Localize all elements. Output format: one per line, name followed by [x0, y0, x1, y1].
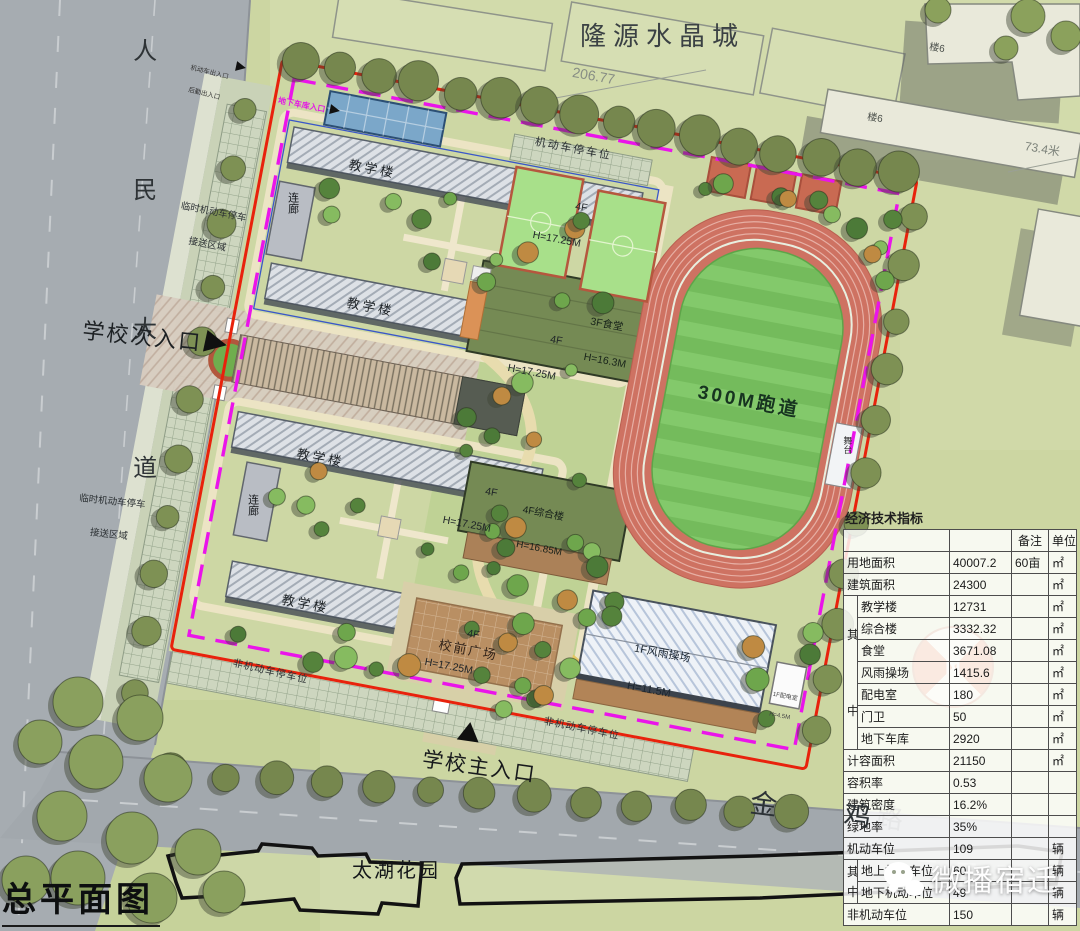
group-label-char1: 其: [847, 626, 854, 643]
temp-parking-line2: 接送区域: [75, 526, 142, 544]
temp-parking-line1: 临时机动车停车: [79, 494, 146, 512]
site-plan-canvas: 隆源水晶城 206.77 楼6 楼6 73.4米 人民大道 学校次入口 临时机动…: [0, 0, 1080, 931]
estate-south-label: 太湖花园: [352, 860, 440, 883]
temp-parking-line1: 临时机动车停车: [180, 201, 247, 224]
teaching-height: H=17.25M: [532, 229, 582, 250]
corridor-label-1: 连廊: [286, 192, 299, 214]
temp-parking-label-2: 临时机动车停车 接送区域: [74, 472, 148, 555]
substation-line2: H=4.5M: [768, 712, 794, 723]
table-row: 其 中 教学楼12731 ㎡: [844, 596, 1077, 618]
teaching-floors: 4F: [430, 621, 480, 642]
table-row: 地下车库2920 ㎡: [844, 728, 1077, 750]
table-header-row: 备注 单位: [844, 530, 1077, 552]
estate-north-label: 隆源水晶城: [580, 22, 745, 52]
corridor-label-2: 连廊: [246, 494, 259, 516]
table-row: 门卫50 ㎡: [844, 706, 1077, 728]
teaching-floors: 4F: [448, 479, 498, 500]
table-row: 配电室180 ㎡: [844, 684, 1077, 706]
page-title: 总平面图: [2, 872, 160, 927]
teaching-floors: 4F: [538, 194, 588, 215]
group-label-char2: 中: [847, 702, 854, 719]
teaching-height: H=17.25M: [424, 656, 474, 677]
gym-line1: 1F风雨操场: [633, 643, 691, 666]
building-tag-6a: 楼6: [928, 42, 945, 56]
group-label-char1: 其: [847, 863, 854, 880]
complex-line2: H=16.85M: [515, 539, 563, 559]
temp-parking-line2: 接送区域: [173, 234, 240, 257]
table-row: 容积率0.53: [844, 772, 1077, 794]
teaching-height: H=17.25M: [442, 514, 492, 535]
stage-label: 舞台: [842, 436, 852, 454]
garage-entrance-arrow-icon: [329, 104, 341, 116]
table-row: 风雨操场1415.6 ㎡: [844, 662, 1077, 684]
main-entrance-arrow-icon: [457, 721, 481, 743]
table-row: 建筑面积24300 ㎡: [844, 574, 1077, 596]
table-row: 计容面积21150 ㎡: [844, 750, 1077, 772]
indicator-table-title: 经济技术指标: [845, 508, 1079, 527]
service-gate-arrow-icon: [235, 61, 247, 73]
wechat-icon: [884, 860, 924, 896]
substation-line1: 1F配电室: [772, 692, 798, 703]
teaching-height: H=17.25M: [507, 362, 557, 383]
table-row: 非机动车位150 辆: [844, 904, 1077, 926]
gym-line2: H=11.5M: [626, 680, 684, 703]
canteen-line2: H=16.3M: [583, 351, 627, 371]
watermark-text: 微播宿迁: [931, 856, 1059, 900]
complex-line1: 4F综合楼: [522, 505, 570, 525]
secondary-entrance-arrow-icon: [203, 330, 229, 356]
canteen-line1: 3F食堂: [589, 316, 633, 336]
teaching-floors: 4F: [513, 327, 563, 348]
table-row: 食堂3671.08 ㎡: [844, 640, 1077, 662]
group-label-char2: 中: [847, 883, 854, 900]
header-unit: 单位: [1049, 530, 1077, 552]
service-gate-line1: 机动车出入口: [190, 64, 230, 81]
table-row: 用地面积40007.2 60亩㎡: [844, 552, 1077, 574]
header-remark: 备注: [1012, 530, 1049, 552]
service-gate-line2: 后勤出入口: [184, 86, 224, 103]
building-tag-6b: 楼6: [866, 112, 883, 126]
table-row: 综合楼3332.32 ㎡: [844, 618, 1077, 640]
watermark: 微播宿迁: [884, 856, 1059, 900]
